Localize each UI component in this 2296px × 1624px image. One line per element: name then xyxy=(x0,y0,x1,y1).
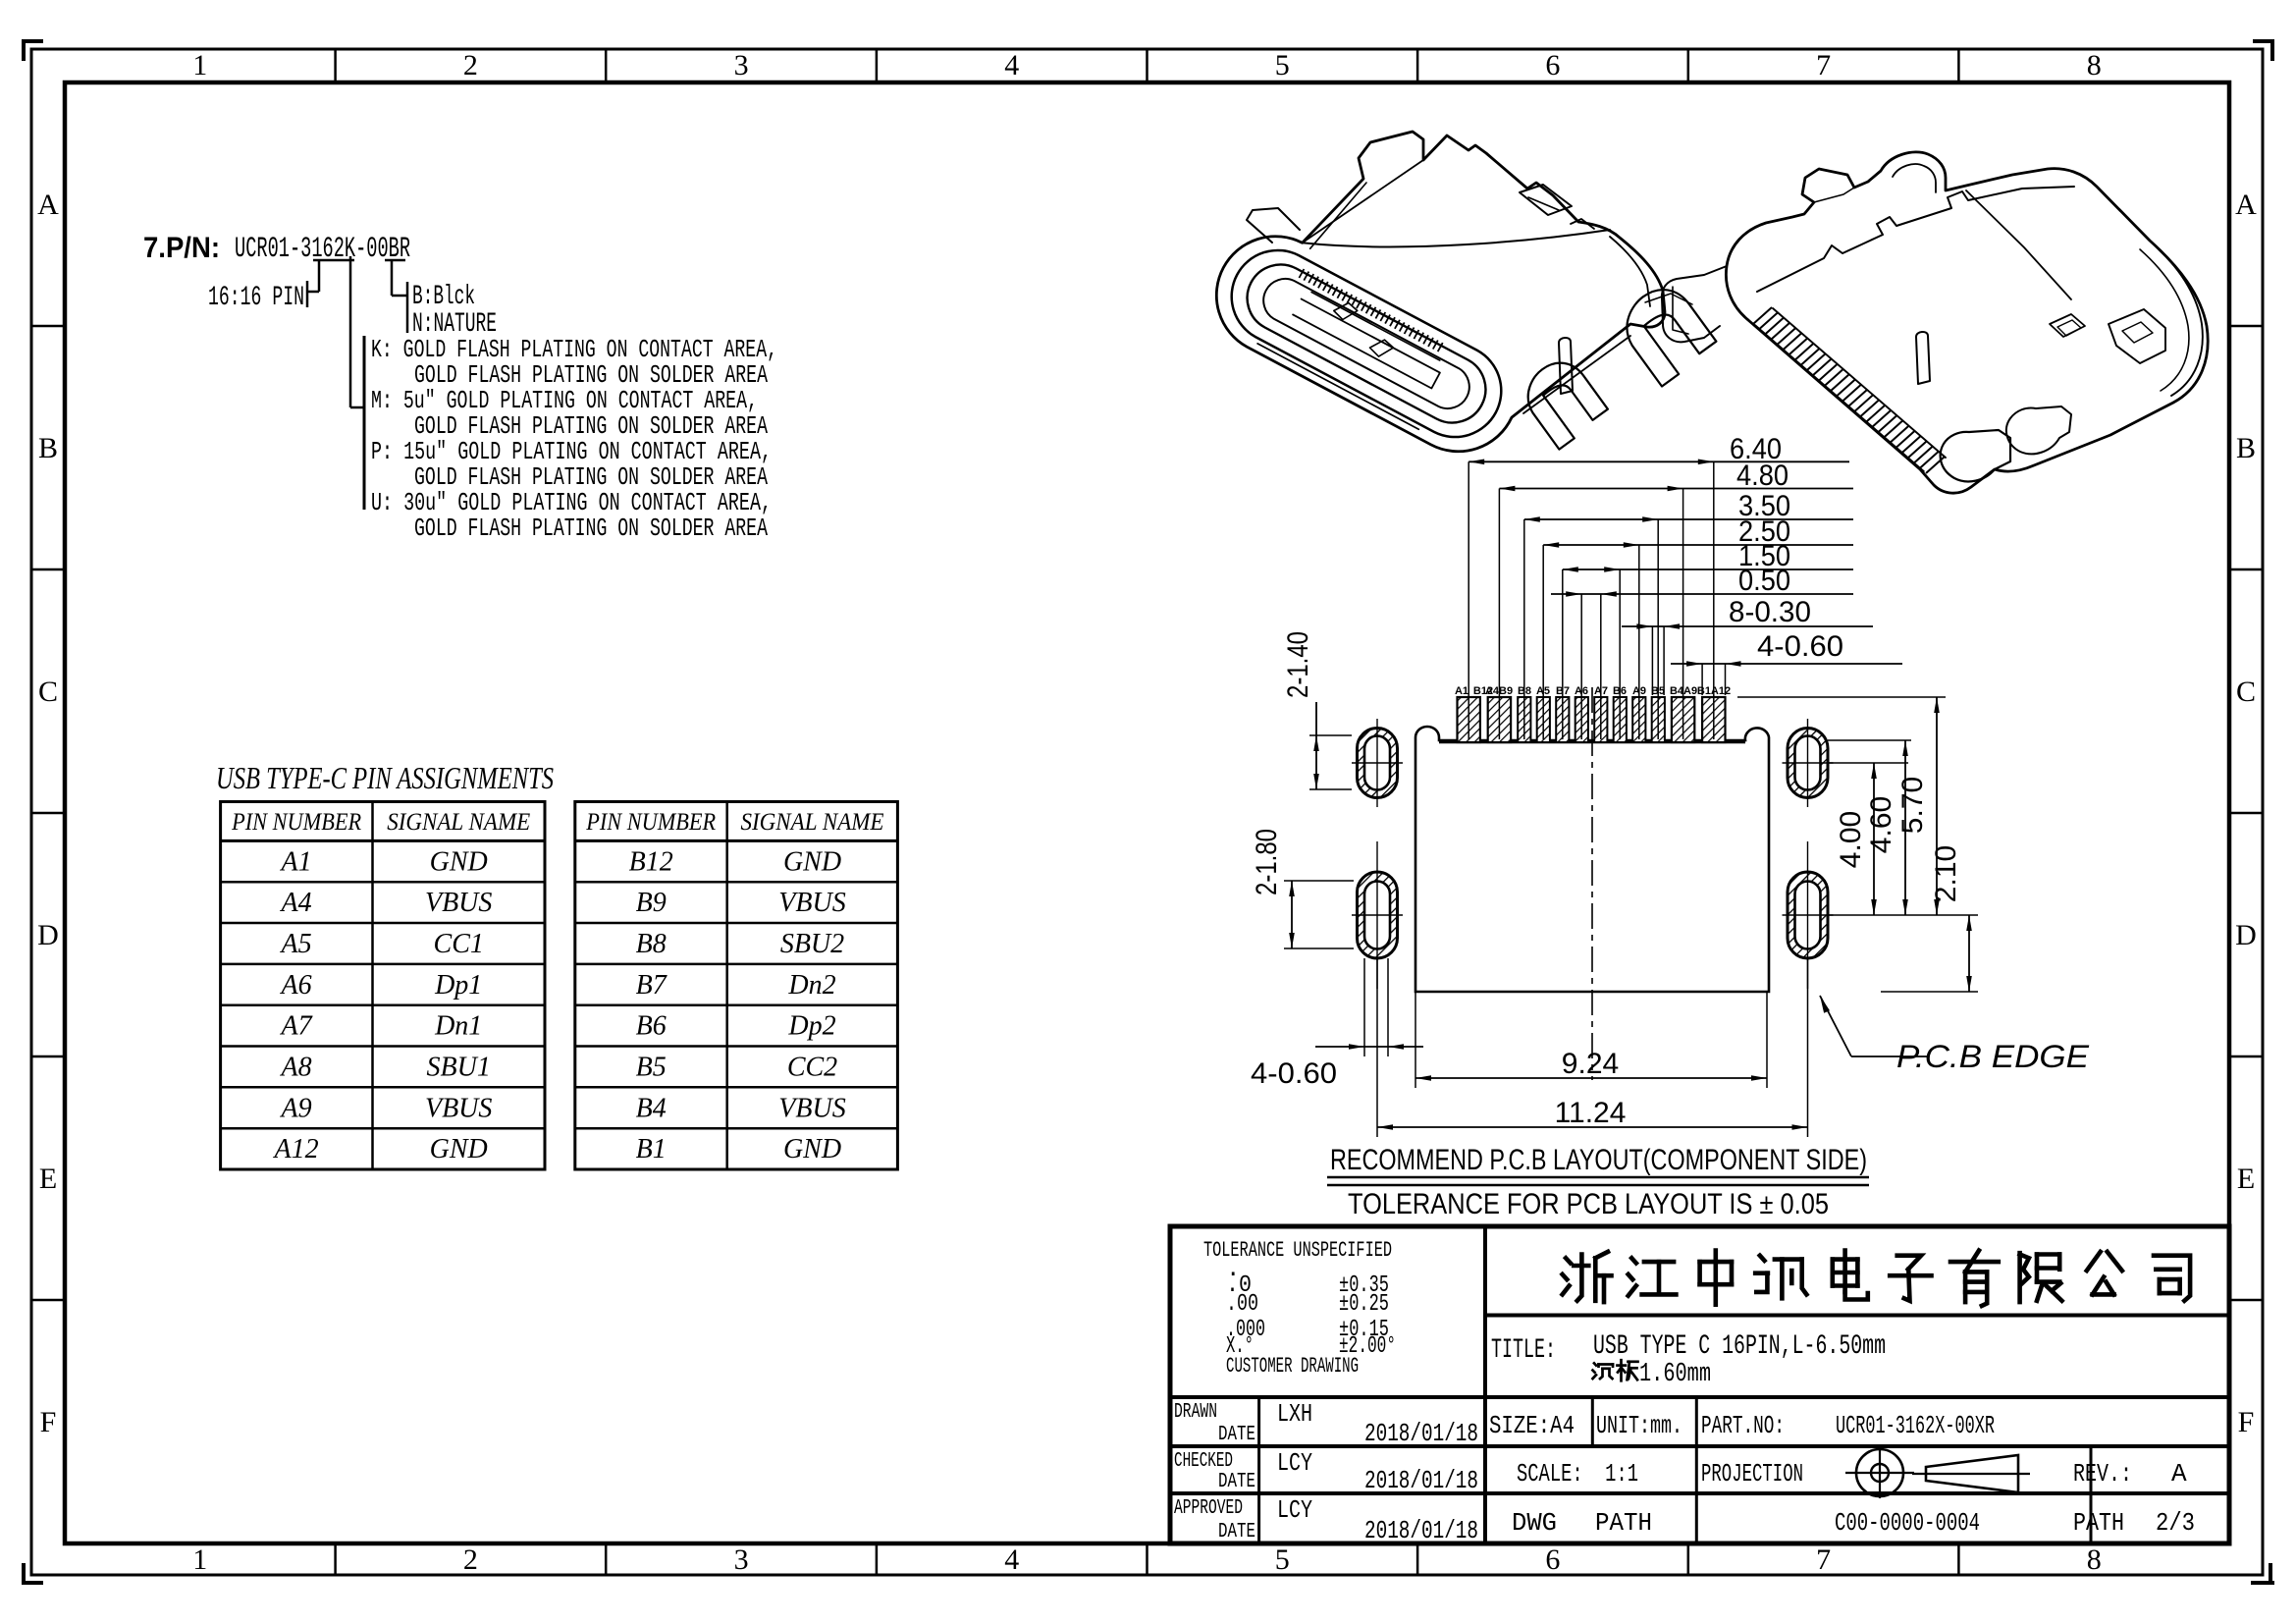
svg-text:A9: A9 xyxy=(280,1093,312,1123)
svg-text:2018/01/18: 2018/01/18 xyxy=(1364,1419,1478,1448)
svg-text:A: A xyxy=(37,189,59,221)
svg-text:2018/01/18: 2018/01/18 xyxy=(1364,1466,1478,1495)
svg-text:6: 6 xyxy=(1545,1543,1560,1576)
svg-text:DATE: DATE xyxy=(1218,1471,1255,1493)
svg-text:A6: A6 xyxy=(280,970,312,1001)
svg-text:A4: A4 xyxy=(280,888,312,918)
svg-text:2-1.80: 2-1.80 xyxy=(1251,829,1283,895)
svg-text:B6: B6 xyxy=(636,1011,667,1042)
svg-text:E: E xyxy=(2237,1163,2255,1195)
svg-text:CHECKED: CHECKED xyxy=(1174,1450,1233,1473)
svg-text:4-0.60: 4-0.60 xyxy=(1251,1057,1337,1090)
svg-text:A: A xyxy=(2171,1459,2187,1489)
svg-text:PATH: PATH xyxy=(1595,1508,1652,1538)
svg-text:B7: B7 xyxy=(636,970,667,1001)
svg-text:8: 8 xyxy=(2087,1543,2102,1576)
svg-text:D: D xyxy=(2235,919,2257,951)
svg-text:7: 7 xyxy=(1816,49,1831,81)
svg-text:3: 3 xyxy=(734,1543,749,1576)
svg-text:Dn2: Dn2 xyxy=(787,970,835,1001)
svg-text:2/3: 2/3 xyxy=(2156,1508,2195,1538)
svg-text:1: 1 xyxy=(192,1543,207,1576)
svg-text:2018/01/18: 2018/01/18 xyxy=(1364,1516,1478,1545)
svg-text:TITLE:: TITLE: xyxy=(1491,1335,1556,1366)
svg-text:1: 1 xyxy=(192,49,207,81)
svg-text:2.10: 2.10 xyxy=(1930,845,1962,902)
svg-text:4.60: 4.60 xyxy=(1865,796,1897,853)
svg-text:A7: A7 xyxy=(280,1011,313,1042)
svg-text:DATE: DATE xyxy=(1218,1521,1255,1543)
svg-text:PIN NUMBER: PIN NUMBER xyxy=(585,809,716,836)
svg-text:SIGNAL NAME: SIGNAL NAME xyxy=(387,809,530,836)
svg-text:RECOMMEND P.C.B LAYOUT(COMPONE: RECOMMEND P.C.B LAYOUT(COMPONENT SIDE) xyxy=(1330,1144,1867,1176)
svg-text:P.C.B EDGE: P.C.B EDGE xyxy=(1896,1039,2090,1074)
svg-text:CC1: CC1 xyxy=(434,929,484,959)
svg-text:6: 6 xyxy=(1545,49,1560,81)
svg-text:5: 5 xyxy=(1275,1543,1290,1576)
svg-text:0.50: 0.50 xyxy=(1738,565,1790,597)
svg-text:2: 2 xyxy=(463,1543,478,1576)
svg-text:A1: A1 xyxy=(1455,685,1468,697)
svg-text:4: 4 xyxy=(1004,1543,1019,1576)
svg-text:PART.NO:: PART.NO: xyxy=(1701,1411,1785,1440)
svg-text:VBUS: VBUS xyxy=(778,1093,845,1123)
svg-text:B8: B8 xyxy=(636,929,667,959)
svg-text:A5: A5 xyxy=(280,929,312,959)
svg-text:REV.:: REV.: xyxy=(2073,1459,2132,1489)
svg-text:2: 2 xyxy=(463,49,478,81)
svg-text:SIGNAL NAME: SIGNAL NAME xyxy=(741,809,884,836)
svg-text:E: E xyxy=(39,1163,57,1195)
svg-text:PROJECTION: PROJECTION xyxy=(1701,1459,1803,1489)
svg-text:GND: GND xyxy=(430,846,488,877)
svg-text:F: F xyxy=(2238,1406,2255,1438)
svg-text:F: F xyxy=(40,1406,57,1438)
svg-text:GND: GND xyxy=(783,1134,841,1164)
svg-text:7.P/N:: 7.P/N: xyxy=(143,232,220,264)
svg-text:B5: B5 xyxy=(636,1052,667,1082)
svg-text:8: 8 xyxy=(2087,49,2102,81)
svg-text:APPROVED: APPROVED xyxy=(1174,1497,1243,1520)
svg-text:B1: B1 xyxy=(636,1134,667,1164)
svg-text:4-0.60: 4-0.60 xyxy=(1757,630,1843,663)
svg-text:A8: A8 xyxy=(280,1052,312,1082)
svg-text:±0.25: ±0.25 xyxy=(1339,1291,1389,1318)
svg-text:D: D xyxy=(37,919,59,951)
svg-text:A1: A1 xyxy=(280,846,312,877)
svg-text:.00: .00 xyxy=(1226,1291,1258,1318)
svg-text:C: C xyxy=(38,676,58,708)
svg-text:16:16 PIN: 16:16 PIN xyxy=(208,283,304,313)
svg-text:SBU2: SBU2 xyxy=(780,929,844,959)
svg-text:UCR01-3162X-00XR: UCR01-3162X-00XR xyxy=(1836,1411,1995,1440)
svg-text:GND: GND xyxy=(783,846,841,877)
svg-text:4.00: 4.00 xyxy=(1835,811,1867,868)
svg-text:B: B xyxy=(38,432,58,464)
svg-text:11.24: 11.24 xyxy=(1555,1097,1627,1129)
svg-text:CC2: CC2 xyxy=(787,1052,837,1082)
svg-text:3: 3 xyxy=(734,49,749,81)
svg-text:DATE: DATE xyxy=(1218,1424,1255,1446)
svg-text:C: C xyxy=(2236,676,2256,708)
svg-text:4.80: 4.80 xyxy=(1736,460,1789,492)
svg-text:SBU1: SBU1 xyxy=(427,1052,491,1082)
svg-text:B12: B12 xyxy=(629,846,673,877)
svg-text:4: 4 xyxy=(1004,49,1019,81)
svg-text:VBUS: VBUS xyxy=(778,888,845,918)
svg-text:CUSTOMER DRAWING: CUSTOMER DRAWING xyxy=(1226,1354,1359,1379)
svg-text:PATH: PATH xyxy=(2073,1508,2124,1538)
svg-text:LXH: LXH xyxy=(1277,1399,1312,1429)
svg-text:GOLD FLASH PLATING ON SOLDER A: GOLD FLASH PLATING ON SOLDER AREA xyxy=(414,514,768,543)
svg-text:PIN NUMBER: PIN NUMBER xyxy=(231,809,361,836)
svg-text:Dn1: Dn1 xyxy=(434,1011,482,1042)
svg-text:A12: A12 xyxy=(273,1134,319,1164)
svg-text:VBUS: VBUS xyxy=(425,1093,492,1123)
svg-text:LCY: LCY xyxy=(1277,1448,1312,1478)
svg-text:B: B xyxy=(2236,432,2256,464)
svg-text:LCY: LCY xyxy=(1277,1495,1312,1525)
svg-text:5: 5 xyxy=(1275,49,1290,81)
svg-text:1.60mm: 1.60mm xyxy=(1639,1360,1711,1389)
svg-text:GND: GND xyxy=(430,1134,488,1164)
svg-text:SCALE: 1:1: SCALE: 1:1 xyxy=(1517,1459,1638,1489)
svg-text:C00-0000-0004: C00-0000-0004 xyxy=(1835,1508,1980,1538)
svg-text:TOLERANCE FOR PCB LAYOUT IS ±: TOLERANCE FOR PCB LAYOUT IS ± 0.05 xyxy=(1348,1188,1829,1220)
svg-text:B4: B4 xyxy=(636,1093,667,1123)
svg-text:8-0.30: 8-0.30 xyxy=(1729,596,1811,628)
svg-text:2-1.40: 2-1.40 xyxy=(1282,631,1314,698)
svg-text:DWG: DWG xyxy=(1512,1508,1557,1538)
svg-text:7: 7 xyxy=(1816,1543,1831,1576)
svg-text:B9: B9 xyxy=(636,888,667,918)
svg-text:9.24: 9.24 xyxy=(1562,1048,1619,1080)
svg-text:SIZE:A4: SIZE:A4 xyxy=(1489,1411,1575,1440)
svg-text:DRAWN: DRAWN xyxy=(1174,1401,1217,1424)
svg-text:VBUS: VBUS xyxy=(425,888,492,918)
svg-text:B:Blck: B:Blck xyxy=(412,282,475,312)
svg-text:USB TYPE C 16PIN,L-6.50mm: USB TYPE C 16PIN,L-6.50mm xyxy=(1593,1331,1886,1362)
svg-text:Dp1: Dp1 xyxy=(434,970,482,1001)
svg-text:5.70: 5.70 xyxy=(1896,777,1929,834)
svg-text:A: A xyxy=(2235,189,2257,221)
svg-text:UNIT:mm.: UNIT:mm. xyxy=(1596,1411,1682,1440)
svg-text:Dp2: Dp2 xyxy=(787,1011,835,1042)
svg-text:USB TYPE-C PIN ASSIGNMENTS: USB TYPE-C PIN ASSIGNMENTS xyxy=(216,760,554,795)
